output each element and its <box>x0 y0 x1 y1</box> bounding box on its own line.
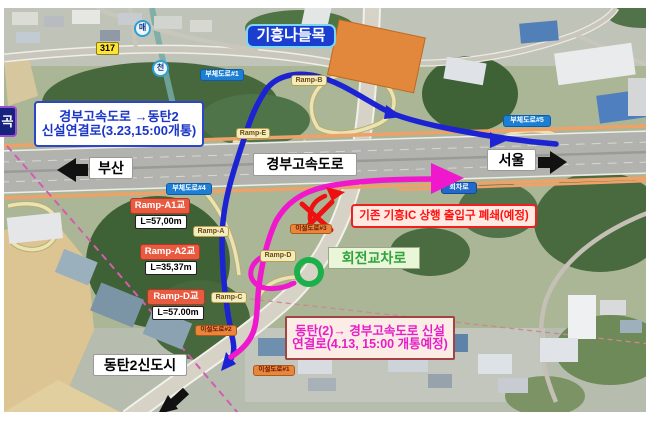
route-317-shield: 317 <box>96 42 119 55</box>
relocated-road-2-label: 이설도로#2 <box>195 325 237 336</box>
ramp-a2-bridge-name: Ramp-A2교 <box>140 244 200 260</box>
stream-marker-icon: 천 <box>152 60 169 77</box>
roundabout-label: 회전교차로 <box>328 247 420 269</box>
dongtan2-city-label: 동탄2신도시 <box>93 354 187 376</box>
dongtan-connector-line2: 연결로(4.13, 15:00 개통예정) <box>292 338 448 351</box>
busan-direction-label: 부산 <box>89 157 133 179</box>
relocated-road-1-label: 이설도로#1 <box>253 365 295 376</box>
closure-notice-box: 기존 기흥IC 상행 출입구 폐쇄(예정) <box>351 204 537 228</box>
ramp-b-tag: Ramp-B <box>291 75 327 86</box>
relocated-road-3-label: 이설도로#3 <box>290 224 332 234</box>
ramp-a-tag: Ramp-A <box>193 226 229 237</box>
stream-marker-icon: 매 <box>134 20 151 37</box>
seoul-direction-label: 서울 <box>487 149 536 171</box>
side-road-5-label: 부체도로#5 <box>503 115 551 127</box>
expressway-name-label: 경부고속도로 <box>253 153 357 176</box>
side-road-1-label: 부체도로#1 <box>200 69 244 81</box>
ramp-a1-bridge-length: L=57,00m <box>135 215 187 229</box>
side-road-4-label: 부체도로#4 <box>166 183 212 195</box>
ramp-c-tag: Ramp-C <box>211 292 247 303</box>
new-connector-info-box: 경부고속도로 →동탄2 신설연결로(3.23,15:00개통) <box>34 101 204 147</box>
interchange-map: 회차로 <box>0 0 650 421</box>
new-connector-line2: 신설연결로(3.23,15:00개통) <box>42 124 197 138</box>
interchange-title-badge: 기흥나들목 <box>246 24 336 48</box>
ramp-e-tag: Ramp-E <box>236 128 270 139</box>
dongtan-connector-info-box: 동탄(2)→ 경부고속도로 신설 연결로(4.13, 15:00 개통예정) <box>285 316 455 360</box>
ramp-d-bridge-length: L=57.00m <box>152 306 204 320</box>
ramp-a2-bridge-length: L=35,37m <box>145 261 197 275</box>
new-connector-line1: 경부고속도로 →동탄2 <box>59 110 179 124</box>
ramp-d-tag: Ramp-D <box>260 250 296 262</box>
ramp-d-bridge-name: Ramp-D교 <box>147 289 205 305</box>
left-edge-place-badge: 곡 <box>0 106 17 137</box>
ramp-a1-bridge-name: Ramp-A1교 <box>130 198 190 214</box>
